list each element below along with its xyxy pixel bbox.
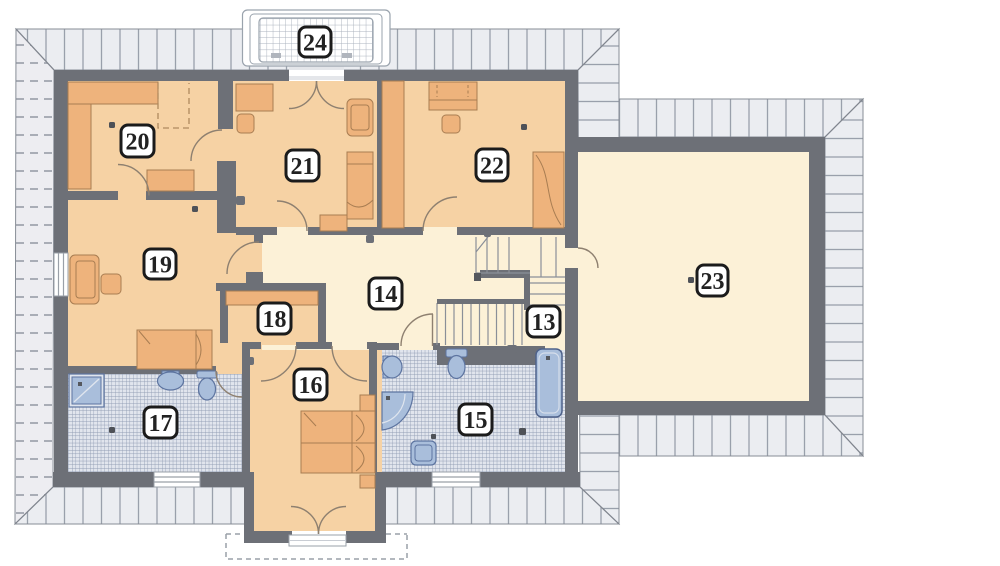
svg-text:16: 16 (299, 373, 323, 399)
svg-text:21: 21 (291, 154, 315, 180)
svg-text:24: 24 (303, 31, 327, 57)
svg-text:20: 20 (126, 130, 150, 156)
svg-text:14: 14 (374, 282, 398, 308)
svg-text:23: 23 (701, 269, 725, 295)
svg-text:17: 17 (149, 411, 173, 437)
svg-text:15: 15 (464, 408, 488, 434)
svg-text:18: 18 (263, 307, 287, 333)
svg-text:13: 13 (532, 310, 556, 336)
svg-text:22: 22 (480, 154, 504, 180)
svg-text:19: 19 (148, 253, 172, 279)
